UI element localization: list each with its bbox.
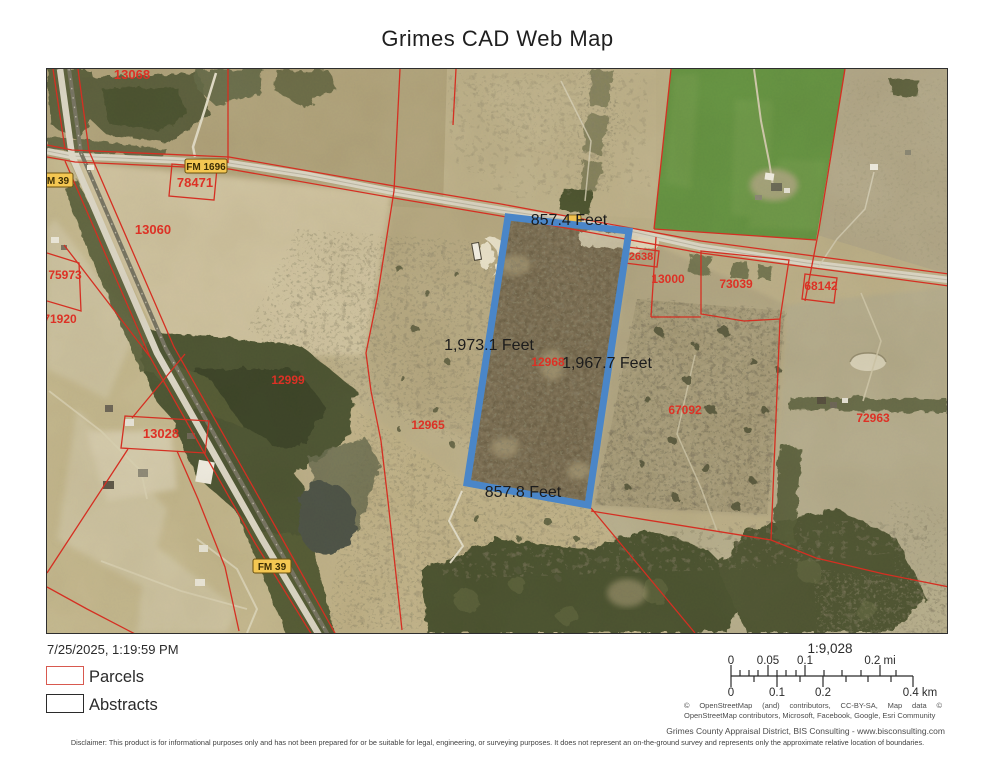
svg-text:67092: 67092 [668,403,702,417]
svg-text:13028: 13028 [143,426,179,441]
svg-text:2638: 2638 [629,251,653,263]
svg-text:0.2: 0.2 [815,687,831,697]
svg-text:72963: 72963 [856,411,890,425]
svg-text:12968: 12968 [531,355,565,369]
svg-text:857.8 Feet: 857.8 Feet [485,484,562,501]
svg-text:68142: 68142 [804,279,838,293]
svg-text:78471: 78471 [177,175,213,190]
svg-text:12965: 12965 [411,418,445,432]
svg-text:13060: 13060 [135,222,171,237]
svg-text:13000: 13000 [651,272,685,286]
svg-text:FM 1696: FM 1696 [186,162,226,173]
svg-text:12999: 12999 [271,373,305,387]
svg-text:0: 0 [728,655,734,667]
svg-text:1,967.7 Feet: 1,967.7 Feet [562,355,652,372]
svg-text:0.1: 0.1 [797,655,813,667]
svg-text:71920: 71920 [47,312,77,326]
svg-text:0.1: 0.1 [769,687,785,697]
svg-text:0.4 km: 0.4 km [903,687,938,697]
svg-text:FM 39: FM 39 [258,562,287,573]
svg-text:M 39: M 39 [47,176,70,187]
svg-text:75973: 75973 [48,268,82,282]
svg-text:0.05: 0.05 [757,655,779,667]
svg-text:73039: 73039 [719,277,753,291]
svg-text:0: 0 [728,687,734,697]
svg-text:0.2 mi: 0.2 mi [864,655,895,667]
svg-text:857.4 Feet: 857.4 Feet [531,212,608,229]
svg-text:1,973.1 Feet: 1,973.1 Feet [444,337,534,354]
svg-text:13068: 13068 [114,69,150,82]
